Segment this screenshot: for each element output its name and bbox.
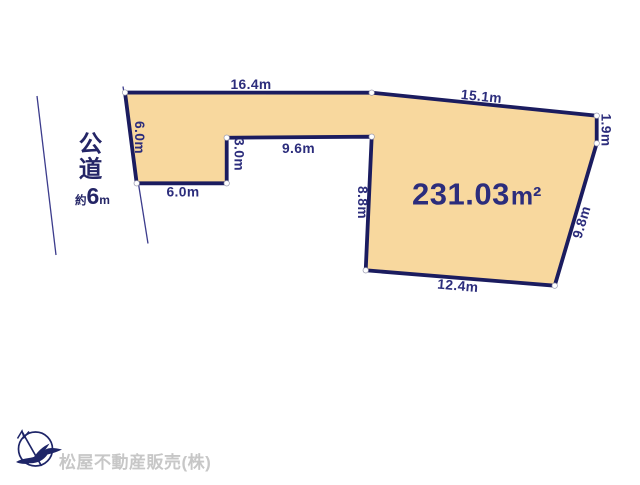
dimension-label-notch-bottom: 6.0m [166,185,199,200]
bird-silhouette [16,448,62,464]
area-value: 231.03 [412,177,510,212]
dimension-label-bottom: 12.4m [437,277,479,295]
area-unit: m² [511,183,542,211]
vertex-dot [363,268,368,273]
dimension-label-left: 6.0m [132,121,147,154]
road-name-label: 公道 [76,131,100,182]
vertex-dot [552,283,557,288]
vertex-dot [134,181,139,186]
plot-diagram-stage: 16.4m 15.1m 1.9m 9.8m 12.4m 8.8m 9.6m 3.… [0,0,640,480]
dimension-label-notch-right: 3.0m [232,138,247,171]
vertex-dot [369,134,374,139]
road-width-prefix: 約 [75,192,87,208]
dimension-label-notch-top: 9.6m [282,141,315,156]
vertex-dot [224,135,229,140]
road-width-label: 約6m [75,183,110,210]
area-label: 231.03m² [412,177,541,212]
dimension-label-top: 16.4m [230,77,271,92]
company-name: 松屋不動産販売(株) [59,448,211,473]
vertex-dot [369,90,374,95]
road-width-unit: m [99,193,110,207]
dimension-label-right-short: 1.9m [599,113,614,146]
vertex-dot [122,90,127,95]
road-width-value: 6 [87,183,100,210]
dimension-label-mid-left: 8.8m [355,186,370,219]
road-edge-line-left [37,96,56,255]
plot-diagram-svg: 16.4m 15.1m 1.9m 9.8m 12.4m 8.8m 9.6m 3.… [0,0,640,480]
vertex-dot [224,181,229,186]
